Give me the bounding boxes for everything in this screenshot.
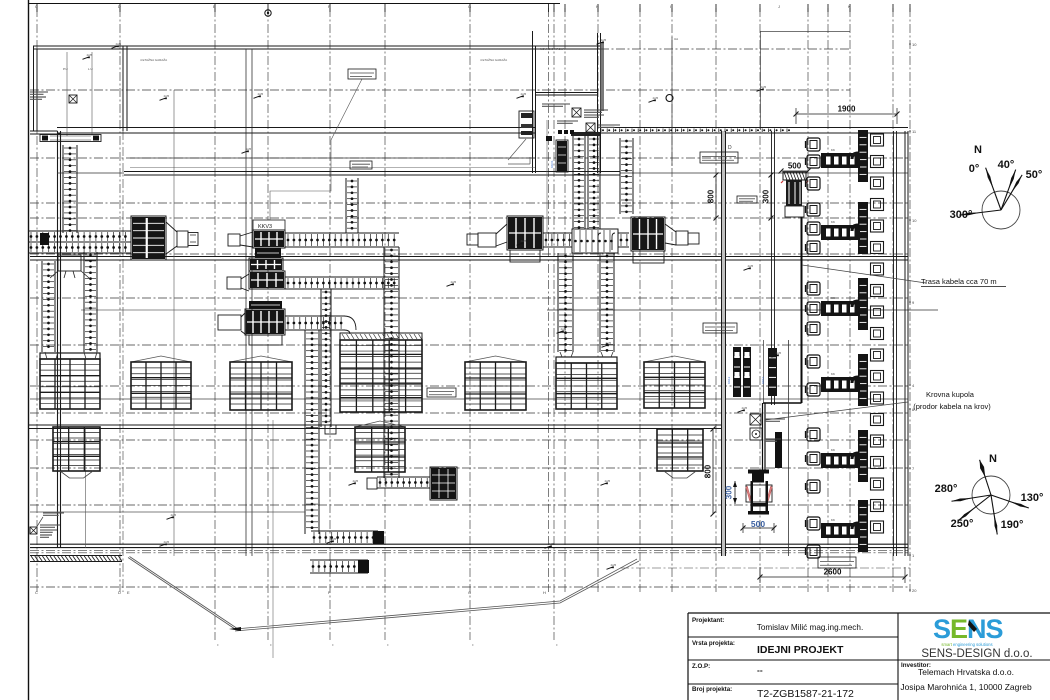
svg-text:4x25: 4x25 [742,406,748,410]
svg-text:280°: 280° [935,483,958,495]
svg-text:G: G [468,590,471,595]
svg-text:IDEJNI PROJEKT: IDEJNI PROJEKT [757,644,844,656]
svg-text:G: G [468,4,471,9]
svg-text:4x25: 4x25 [164,94,170,98]
svg-text:4x25: 4x25 [549,542,555,546]
svg-text:D: D [728,145,732,151]
svg-text:Krovna kupola: Krovna kupola [926,390,975,399]
svg-text:KKV1: KKV1 [550,160,554,168]
svg-text:4x25: 4x25 [776,351,782,355]
svg-text:300: 300 [725,485,734,499]
svg-text:10: 10 [912,218,917,223]
svg-text:H: H [543,590,546,595]
svg-text:50°: 50° [1026,169,1043,181]
svg-text:KKV3: KKV3 [258,224,272,230]
svg-text:130°: 130° [1021,492,1044,504]
svg-text:0°: 0° [969,163,980,175]
svg-text:4x25: 4x25 [605,479,611,483]
svg-text:4 ETAŽNA GARAŽA: 4 ETAŽNA GARAŽA [480,57,507,62]
svg-text:4x25: 4x25 [164,540,170,544]
svg-text:KK: KK [831,148,835,152]
svg-text:K: K [848,4,851,9]
svg-text:40°: 40° [998,159,1015,171]
svg-text:4x25: 4x25 [561,327,567,331]
svg-text:4x25: 4x25 [353,479,359,483]
svg-text:4 ETAŽNA GARAŽA: 4 ETAŽNA GARAŽA [140,57,167,62]
svg-text:--: -- [757,665,763,675]
svg-text:4x25: 4x25 [331,537,337,541]
svg-text:T2-ZGB1587-21-172: T2-ZGB1587-21-172 [757,688,854,700]
svg-text:10: 10 [912,42,917,47]
svg-text:2600: 2600 [824,568,842,577]
svg-text:4x25: 4x25 [601,38,607,42]
svg-text:smart engineering solutions: smart engineering solutions [941,642,992,647]
svg-text:20: 20 [912,588,917,593]
svg-text:F: F [217,643,219,647]
svg-text:1900: 1900 [838,105,856,114]
svg-text:(prodor kabela na krov): (prodor kabela na krov) [913,402,991,411]
svg-text:D: D [118,590,121,595]
svg-text:N: N [974,144,982,156]
svg-text:4x25: 4x25 [606,341,612,345]
svg-text:4x25: 4x25 [116,42,122,46]
svg-text:E: E [127,590,130,595]
svg-text:NOVI DIO KROVA: NOVI DIO KROVA [540,47,565,51]
svg-text:4x25: 4x25 [246,147,252,151]
svg-text:Broj projekta:: Broj projekta: [692,686,732,693]
svg-text:Vrsta projekta:: Vrsta projekta: [692,640,735,647]
svg-text:4x25: 4x25 [87,53,93,57]
svg-text:Trasa kabela cca 70 m: Trasa kabela cca 70 m [921,277,997,286]
svg-text:Josipa Marohnića 1, 10000 Zagr: Josipa Marohnića 1, 10000 Zagreb [900,682,1032,692]
svg-text:4x25: 4x25 [748,264,754,268]
svg-text:P.U: P.U [63,67,68,71]
svg-text:J: J [778,4,780,9]
svg-text:KK: KK [831,372,835,376]
svg-text:KK: KK [831,220,835,224]
svg-text:H: H [596,4,599,9]
svg-text:SENS-DESIGN d.o.o.: SENS-DESIGN d.o.o. [921,648,1032,660]
svg-text:4x25: 4x25 [171,513,177,517]
svg-text:F: F [556,643,558,647]
svg-text:Projektant:: Projektant: [692,617,724,624]
svg-text:KK12: KK12 [727,376,731,384]
svg-text:D: D [118,4,121,9]
svg-text:4x25: 4x25 [451,280,457,284]
svg-text:F: F [387,643,389,647]
svg-text:E: E [213,4,216,9]
svg-text:KK13: KK13 [761,376,765,384]
svg-text:300: 300 [762,189,771,203]
svg-text:I: I [670,4,671,9]
svg-text:250°: 250° [951,518,974,530]
svg-text:300°: 300° [950,209,973,221]
svg-text:Z.O.P:: Z.O.P: [692,663,710,670]
svg-text:4x25: 4x25 [653,96,659,100]
svg-text:F: F [332,643,334,647]
svg-text:KK: KK [831,518,835,522]
svg-text:C: C [35,4,38,9]
svg-text:UA: UA [674,37,678,41]
svg-text:800: 800 [704,464,713,478]
svg-text:KK: KK [831,296,835,300]
svg-text:4x25: 4x25 [761,85,767,89]
svg-text:N: N [989,453,997,465]
svg-text:190°: 190° [1001,519,1024,531]
svg-text:F: F [472,643,474,647]
svg-text:4x25: 4x25 [611,563,617,567]
svg-text:500: 500 [751,519,765,529]
svg-text:KK: KK [831,448,835,452]
svg-text:Tomislav Milić mag.ing.mech.: Tomislav Milić mag.ing.mech. [757,623,863,632]
svg-text:4x25: 4x25 [521,239,527,243]
svg-text:C: C [35,590,38,595]
svg-text:800: 800 [707,189,716,203]
svg-text:F: F [270,643,272,647]
svg-text:4x25: 4x25 [521,92,527,96]
svg-text:4x25: 4x25 [258,92,264,96]
svg-text:500: 500 [788,162,802,171]
svg-text:L.U: L.U [88,67,93,71]
svg-text:Telemach Hrvatska d.o.o.: Telemach Hrvatska d.o.o. [918,667,1014,677]
svg-text:SENS: SENS [933,614,1003,644]
